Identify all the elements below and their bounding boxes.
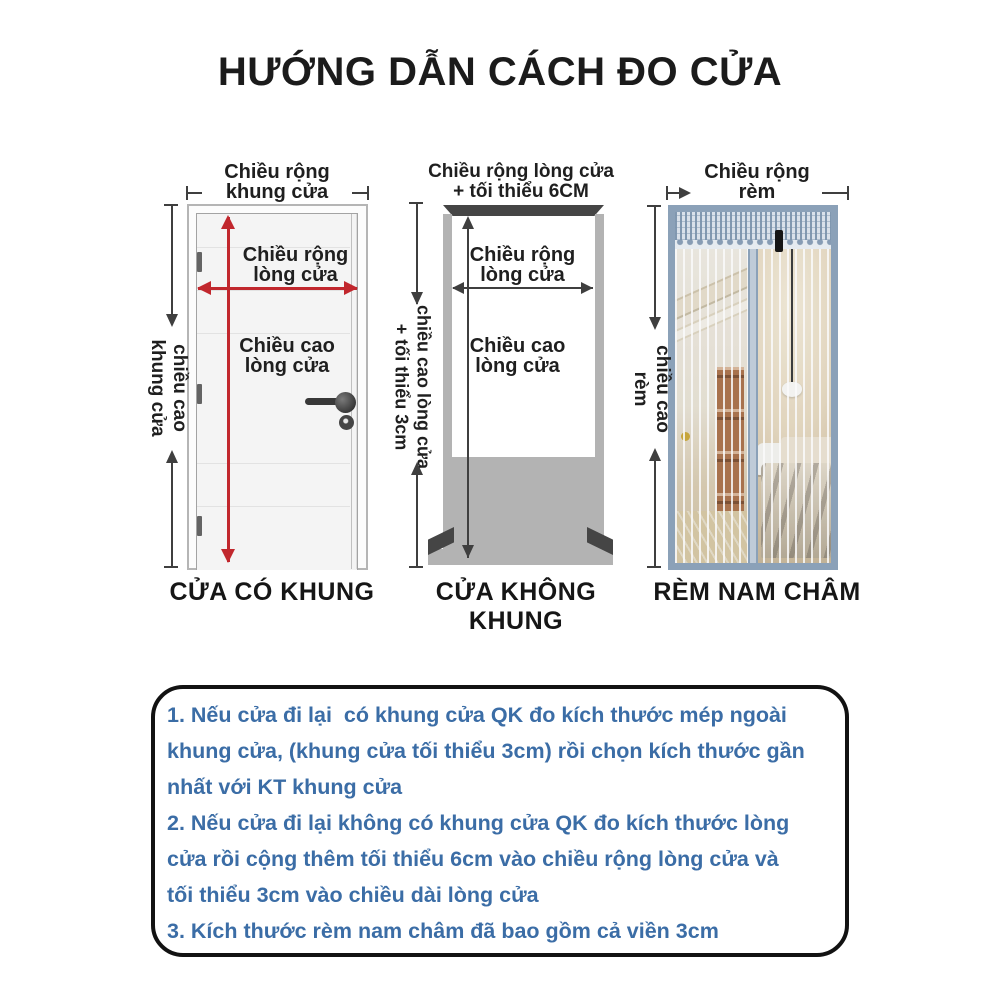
- page-title: HƯỚNG DẪN CÁCH ĐO CỬA: [0, 50, 1000, 95]
- label-line: Chiều rộng: [470, 244, 576, 266]
- label-line: rèm: [692, 182, 822, 202]
- curtain-handle-tab: [775, 230, 783, 252]
- door-handle-rosette: [335, 392, 356, 413]
- door-hinge: [197, 516, 202, 536]
- opening-lintel: [443, 205, 604, 216]
- opening-height-label: chiều cao lòng cửa + tối thiểu 3cm: [391, 300, 435, 475]
- dim-line: [654, 207, 656, 317]
- dim-tick: [847, 186, 849, 200]
- arrowhead-up: [166, 450, 178, 463]
- inner-width-label: Chiều rộng lòng cửa: [455, 245, 590, 285]
- dim-tick: [409, 566, 423, 568]
- instruction-line: 2. Nếu cửa đi lại không có khung cửa QK …: [167, 805, 835, 841]
- label-line: Chiều cao: [470, 335, 566, 357]
- arrowhead-up: [411, 462, 423, 475]
- instruction-line: khung cửa, (khung cửa tối thiểu 3cm) rồi…: [167, 733, 835, 769]
- curtain-center-divider: [748, 249, 758, 563]
- red-arrowhead-up: [221, 215, 235, 229]
- frame-width-label: Chiều rộng khung cửa: [202, 162, 352, 202]
- label-line: + tối thiểu 6CM: [420, 182, 622, 202]
- red-width-arrow: [198, 287, 357, 290]
- arrowhead-right: [679, 187, 691, 199]
- dim-line: [654, 461, 656, 567]
- red-arrowhead-left: [197, 281, 211, 295]
- instruction-line: 3. Kích thước rèm nam châm đã bao gồm cả…: [167, 913, 835, 949]
- inner-height-label: Chiều cao lòng cửa: [450, 336, 585, 376]
- opening-width-label: Chiều rộng lòng cửa + tối thiểu 6CM: [420, 162, 622, 202]
- label-line: Chiều rộng: [704, 161, 810, 183]
- label-line: khung cửa: [202, 182, 352, 202]
- label-line: lòng cửa: [228, 265, 363, 285]
- arrowhead-up: [462, 216, 474, 229]
- measurement-guide-page: HƯỚNG DẪN CÁCH ĐO CỬA Chiều rộng khung c…: [0, 0, 1000, 1000]
- label-line: rèm: [629, 327, 651, 451]
- inner-width-label: Chiều rộng lòng cửa: [228, 245, 363, 285]
- curtain-width-label: Chiều rộng rèm: [692, 162, 822, 202]
- door-keyhole: [339, 415, 354, 430]
- arrowhead-up: [649, 448, 661, 461]
- instructions-box: 1. Nếu cửa đi lại có khung cửa QK đo kíc…: [151, 685, 849, 957]
- framed-door-caption: CỬA CÓ KHUNG: [147, 578, 397, 607]
- curtain-room-scene: [675, 249, 831, 563]
- inner-width-arrow: [453, 287, 593, 289]
- label-line: + tối thiểu 3cm: [391, 300, 413, 475]
- door-hinge: [197, 384, 202, 404]
- red-arrowhead-down: [221, 549, 235, 563]
- arrowhead-down: [462, 545, 474, 558]
- frame-height-label: chiều cao khung cửa: [146, 326, 190, 450]
- frameless-door-caption: CỬA KHÔNG KHUNG: [391, 578, 641, 636]
- label-line: lòng cửa: [222, 356, 352, 376]
- instruction-line: nhất với KT khung cửa: [167, 769, 835, 805]
- dim-tick: [164, 566, 178, 568]
- door-panel-line: [197, 506, 350, 507]
- instruction-line: tối thiểu 3cm vào chiều dài lòng cửa: [167, 877, 835, 913]
- door-panel-line: [197, 290, 350, 291]
- curtain-caption: RÈM NAM CHÂM: [632, 578, 882, 607]
- label-line: lòng cửa: [455, 265, 590, 285]
- dim-line: [416, 475, 418, 567]
- dim-tick: [367, 186, 369, 200]
- dim-tick: [647, 566, 661, 568]
- label-line: Chiều rộng: [224, 161, 330, 183]
- door-panel-line: [197, 333, 350, 334]
- instruction-line: cửa rồi cộng thêm tối thiểu 6cm vào chiề…: [167, 841, 835, 877]
- label-line: chiều cao: [169, 344, 190, 432]
- opening-threshold: [428, 549, 613, 565]
- curtain-height-label: chiều cao rèm: [629, 327, 673, 451]
- label-line: Chiều rộng: [243, 244, 349, 266]
- inner-height-label: Chiều cao lòng cửa: [222, 336, 352, 376]
- label-line: chiều cao lòng cửa: [414, 305, 434, 469]
- dim-line: [171, 206, 173, 314]
- curtain-frame: [668, 205, 838, 570]
- door-hinge: [197, 252, 202, 272]
- instruction-line: 1. Nếu cửa đi lại có khung cửa QK đo kíc…: [167, 697, 835, 733]
- label-line: Chiều rộng lòng cửa: [428, 161, 614, 182]
- door-panel-line: [197, 463, 350, 464]
- label-line: chiều cao: [652, 345, 673, 433]
- dim-line: [416, 204, 418, 304]
- dim-line: [822, 192, 848, 194]
- label-line: khung cửa: [146, 326, 168, 450]
- label-line: lòng cửa: [450, 356, 585, 376]
- curtain-lace-scallop: [675, 240, 831, 249]
- opening-lower-wall: [446, 457, 601, 552]
- dim-line: [171, 463, 173, 567]
- curtain-lace-band: [675, 212, 831, 240]
- label-line: Chiều cao: [239, 335, 335, 357]
